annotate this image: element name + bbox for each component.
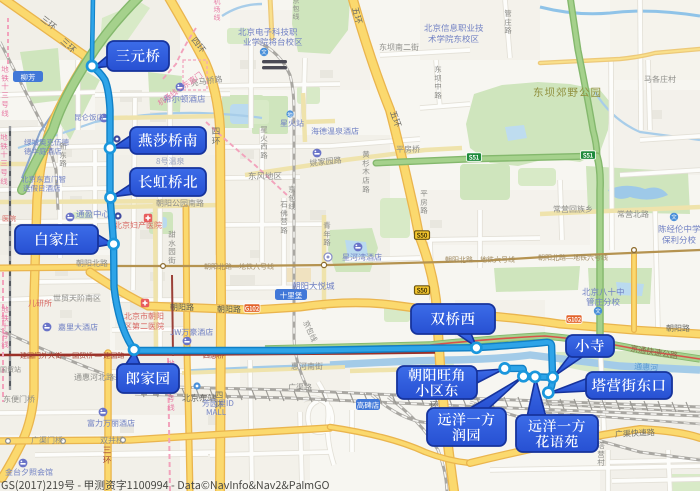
svg-text:星河湾酒店: 星河湾酒店: [342, 252, 382, 263]
svg-text:朝阳北路—地铁六号线: 朝阳北路—地铁六号线: [445, 255, 515, 265]
svg-text:北京妇产医院: 北京妇产医院: [114, 220, 162, 231]
svg-text:朝阳路: 朝阳路: [170, 302, 194, 313]
svg-text:朝阳路: 朝阳路: [666, 323, 690, 334]
svg-text:线: 线: [1, 108, 9, 119]
svg-text:朝阳北路: 朝阳北路: [76, 258, 108, 269]
svg-text:G102: G102: [245, 303, 260, 312]
svg-text:建国门外大街 — 国贸桥 — 建国路: 建国门外大街 — 国贸桥 — 建国路: [20, 351, 124, 361]
svg-text:富力万丽酒店: 富力万丽酒店: [87, 418, 135, 429]
svg-text:惠河南街: 惠河南街: [291, 361, 323, 372]
svg-text:线: 线: [167, 402, 175, 413]
svg-text:常营北路: 常营北路: [617, 209, 649, 220]
svg-text:东风地区: 东风地区: [248, 170, 283, 182]
svg-text:东便门桥: 东便门桥: [3, 394, 35, 405]
svg-text:润园: 润园: [452, 425, 481, 445]
svg-text:文: 文: [261, 48, 267, 56]
svg-text:路: 路: [260, 150, 268, 161]
svg-text:儿研所: 儿研所: [28, 298, 52, 309]
svg-text:路: 路: [434, 90, 442, 101]
svg-text:GS(2017)219号 - 甲测资字1100994 - D: GS(2017)219号 - 甲测资字1100994 - Data©NavInf…: [1, 477, 330, 491]
svg-text:保利分校: 保利分校: [662, 234, 697, 246]
svg-text:通盈中心: 通盈中心: [76, 208, 111, 220]
svg-text:高碑店: 高碑店: [357, 400, 380, 411]
svg-text:平房桥: 平房桥: [396, 144, 420, 155]
svg-text:环: 环: [103, 454, 112, 466]
svg-text:线: 线: [1, 339, 9, 350]
svg-text:广渠路: 广渠路: [288, 382, 312, 393]
svg-text:朝阳路: 朝阳路: [217, 304, 241, 315]
svg-text:海德温泉酒店: 海德温泉酒店: [311, 126, 359, 137]
svg-text:小区东: 小区东: [415, 380, 459, 400]
svg-text:术学院东校区: 术学院东校区: [428, 33, 480, 45]
svg-text:文: 文: [595, 307, 601, 315]
svg-text:塔营街东口: 塔营街东口: [592, 375, 667, 396]
svg-text:朝阳北路—地铁六号线: 朝阳北路—地铁六号线: [204, 262, 274, 272]
svg-text:德华庭酒店: 德华庭酒店: [24, 146, 62, 157]
svg-text:燕莎桥南: 燕莎桥南: [138, 130, 198, 151]
svg-text:S51: S51: [469, 152, 480, 161]
svg-text:S50: S50: [417, 230, 428, 239]
svg-text:业学院将台校区: 业学院将台校区: [243, 36, 303, 48]
svg-text:双桥西: 双桥西: [431, 308, 476, 329]
svg-text:昆仑饭店: 昆仑饭店: [74, 112, 104, 123]
svg-text:区第二医院: 区第二医院: [124, 321, 164, 332]
svg-text:路: 路: [323, 237, 331, 248]
svg-text:选假日酒店: 选假日酒店: [23, 183, 61, 194]
svg-text:8号温泉: 8号温泉: [156, 156, 184, 167]
svg-text:白家庄: 白家庄: [34, 229, 79, 250]
svg-text:东坝郊野公园: 东坝郊野公园: [533, 85, 602, 100]
svg-text:环: 环: [212, 135, 221, 147]
svg-text:小寺: 小寺: [575, 335, 605, 356]
svg-text:嘉里大酒店: 嘉里大酒店: [58, 322, 98, 333]
svg-text:S51: S51: [583, 150, 594, 159]
svg-text:东坝南二街: 东坝南二街: [379, 42, 419, 53]
svg-text:文: 文: [671, 213, 677, 221]
svg-text:郎家园: 郎家园: [126, 368, 171, 389]
svg-text:医院: 医院: [2, 214, 16, 224]
svg-text:国贸站: 国贸站: [0, 365, 21, 375]
svg-text:街: 街: [168, 255, 176, 266]
svg-text:柳芳: 柳芳: [21, 72, 36, 83]
svg-text:村: 村: [597, 457, 605, 468]
svg-text:朝阳公园南路: 朝阳公园南路: [156, 198, 204, 209]
svg-text:线: 线: [0, 176, 8, 187]
svg-text:朝阳大悦城: 朝阳大悦城: [292, 280, 335, 292]
svg-text:线: 线: [293, 12, 300, 22]
svg-text:广渠门桥: 广渠门桥: [31, 435, 63, 446]
svg-text:G102: G102: [567, 314, 582, 323]
svg-text:星火站: 星火站: [280, 118, 304, 129]
svg-text:花语苑: 花语苑: [535, 431, 579, 451]
svg-text:路: 路: [420, 205, 428, 216]
svg-text:路: 路: [362, 184, 370, 195]
svg-text:线: 线: [288, 201, 296, 212]
svg-text:路: 路: [504, 25, 512, 36]
svg-text:长虹桥北: 长虹桥北: [138, 171, 198, 192]
svg-text:路: 路: [280, 225, 288, 236]
svg-text:管庄分校: 管庄分校: [586, 296, 621, 308]
svg-text:马各庄村: 马各庄村: [644, 74, 676, 85]
svg-text:世贸天阶南区: 世贸天阶南区: [53, 293, 101, 304]
svg-text:三元桥: 三元桥: [116, 45, 161, 66]
svg-text:常营回族乡: 常营回族乡: [553, 204, 593, 215]
svg-text:S50: S50: [417, 285, 428, 294]
svg-text:JW万豪酒店: JW万豪酒店: [170, 327, 213, 338]
svg-text:广渠快速路: 广渠快速路: [615, 427, 656, 440]
svg-text:线: 线: [214, 13, 221, 23]
svg-text:朝阳北路—地铁六号线: 朝阳北路—地铁六号线: [538, 253, 608, 263]
svg-text:通惠河北路: 通惠河北路: [74, 372, 114, 383]
svg-text:路: 路: [59, 158, 67, 169]
svg-text:MALL: MALL: [206, 407, 227, 418]
